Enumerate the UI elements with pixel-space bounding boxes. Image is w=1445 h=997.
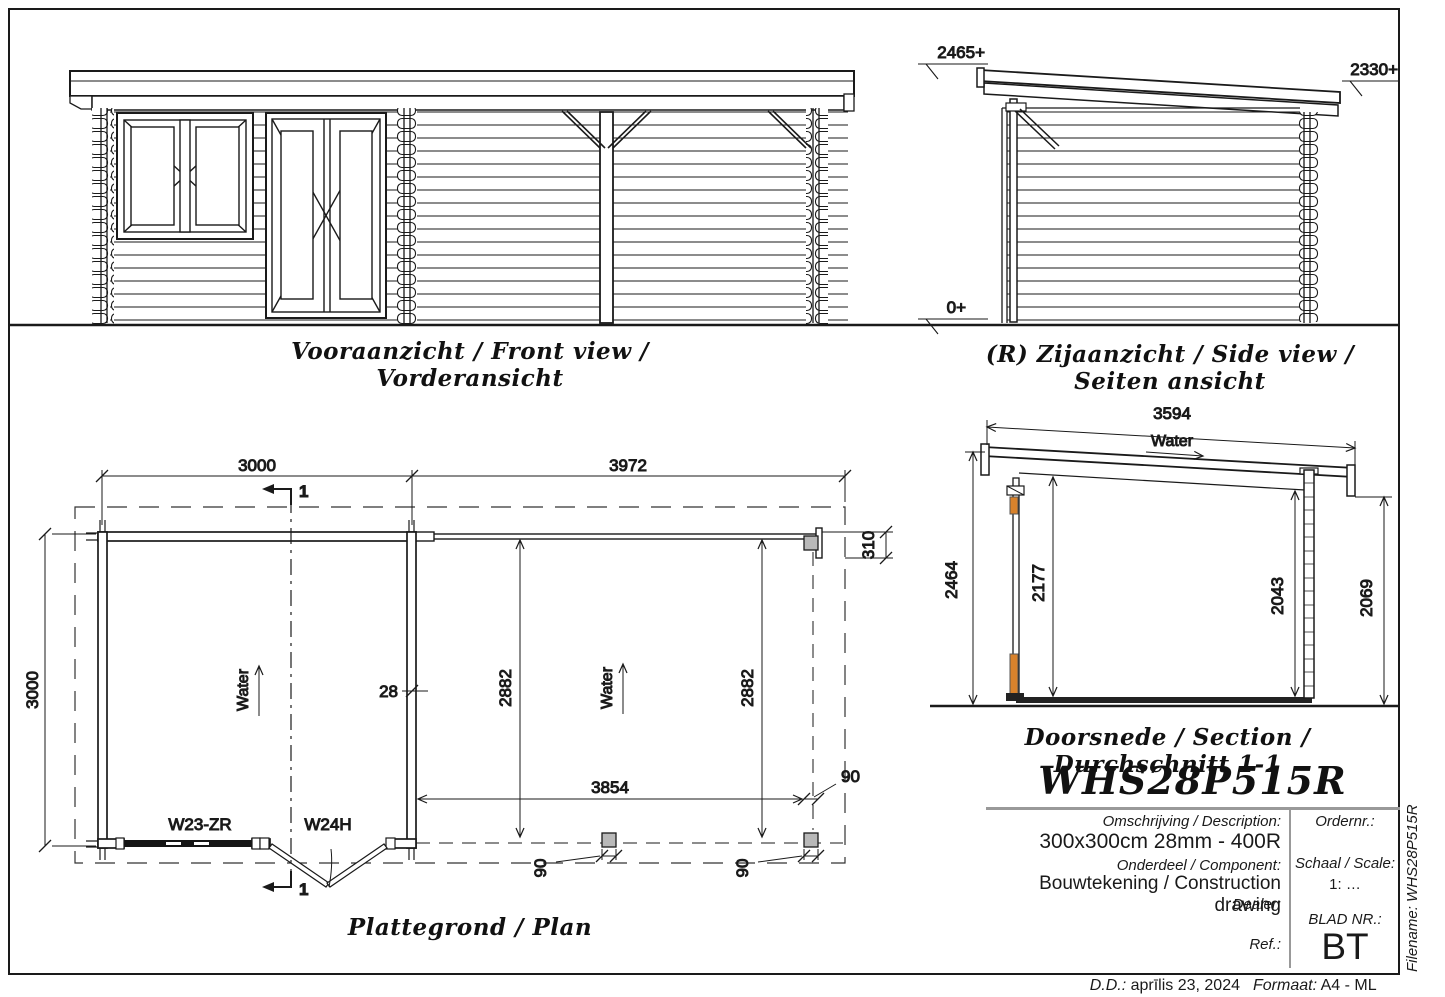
filename-label: Filename: (1404, 906, 1421, 972)
plan-post-bottom-middle (602, 833, 616, 847)
side-post (1010, 99, 1017, 322)
format-value: A4 - ML (1321, 977, 1377, 994)
dim-wall-thickness: 28 (379, 682, 398, 701)
level-eave-value: 2465+ (937, 43, 985, 62)
format-field: Formaat: A4 - ML (1253, 977, 1377, 995)
section-marker-top-number: 1 (299, 482, 308, 501)
roof-outline-dashed (75, 507, 845, 863)
sheet-number-value: BT (1290, 926, 1400, 968)
plan-caption: Plattegrond / Plan (340, 914, 600, 941)
ref-label: Ref.: (986, 936, 1281, 953)
dim-canopy-width: 3972 (609, 456, 647, 475)
front-window (117, 113, 253, 239)
dim-post-bottom-right: 90 (733, 859, 752, 878)
dim-roof-length: 3594 (1153, 404, 1191, 423)
date-field: D.D.: aprīlis 23, 2024 (1030, 977, 1240, 995)
dim-height-inner-left: 2177 (1029, 564, 1048, 602)
dim-height-right: 2069 (1357, 579, 1376, 617)
dim-cabin-depth: 3000 (23, 671, 42, 709)
section-right-wall (1304, 470, 1314, 698)
dim-roof-overhang: 310 (859, 531, 878, 559)
dim-height-left: 2464 (942, 561, 961, 599)
dim-cabin-width: 3000 (238, 456, 276, 475)
section-left-post (1006, 478, 1024, 701)
section-marker-top (262, 484, 291, 505)
level-rear-value: 2330+ (1350, 60, 1398, 79)
construction-drawing-sheet: 2465+ 2330+ 0+ (0, 0, 1445, 997)
wood-block-top (1010, 497, 1018, 514)
floor-slab (1016, 697, 1312, 703)
plan-window-w23zr (116, 838, 260, 849)
water-label-left: Water (235, 668, 252, 711)
dim-inner-depth-right: 2882 (738, 669, 757, 707)
date-value: aprīlis 23, 2024 (1131, 977, 1240, 994)
component-label: Onderdeel / Component: (986, 857, 1281, 874)
side-view-caption: (R) Zijaanzicht / Side view / Seiten ans… (945, 341, 1395, 395)
level-mark-rear (1342, 81, 1399, 96)
section-marker-bottom-number: 1 (299, 880, 308, 899)
section-view-drawing: 3594 Water 2464 2177 2043 2069 (930, 404, 1400, 706)
gutter-profile (70, 96, 92, 109)
dim-post-top: 90 (841, 767, 860, 786)
format-label: Formaat: (1253, 977, 1317, 994)
dim-inner-depth-left: 2882 (496, 669, 515, 707)
dim-canopy-clear-width: 3854 (591, 778, 629, 797)
side-view-drawing: 2465+ 2330+ 0+ (918, 43, 1399, 334)
model-code: WHS28P515R (985, 758, 1400, 803)
description-label: Omschrijving / Description: (986, 813, 1281, 830)
order-number-label: Ordernr.: (1290, 813, 1400, 830)
water-flow-arrow-section (1146, 452, 1203, 456)
front-door (266, 113, 386, 318)
front-view-drawing (8, 71, 1400, 325)
dim-post-bottom-left: 90 (531, 859, 550, 878)
dim-height-inner-right: 2043 (1268, 577, 1287, 615)
filename-field: Filename: WHS28P515R (1404, 762, 1421, 972)
title-block: Omschrijving / Description: 300x300cm 28… (986, 810, 1400, 973)
scale-label: Schaal / Scale: (1290, 855, 1400, 872)
front-view-caption: Vooraanzicht / Front view / Vorderansich… (230, 338, 710, 392)
dealer-label: Dealer: (986, 896, 1281, 913)
canopy-post (600, 112, 613, 323)
filename-value: WHS28P515R (1404, 804, 1421, 902)
description-value: 300x300cm 28mm - 400R (986, 830, 1281, 854)
plan-view-drawing: 3000 3972 3000 28 2882 2882 3854 310 90 … (23, 456, 893, 899)
side-brace (1015, 109, 1059, 149)
section-marker-bottom (262, 871, 291, 892)
water-label-section: Water (1151, 433, 1194, 450)
wood-block-bottom (1010, 654, 1018, 696)
scale-value: 1: … (1290, 876, 1400, 893)
level-ground-value: 0+ (947, 298, 966, 317)
door-code-label: W24H (304, 815, 351, 834)
plan-post-top-right (804, 536, 818, 550)
date-label: D.D.: (1090, 977, 1126, 994)
level-mark-ground (918, 319, 988, 334)
window-code-label: W23-ZR (168, 815, 231, 834)
water-label-right: Water (599, 666, 616, 709)
plan-post-bottom-right (804, 833, 818, 847)
